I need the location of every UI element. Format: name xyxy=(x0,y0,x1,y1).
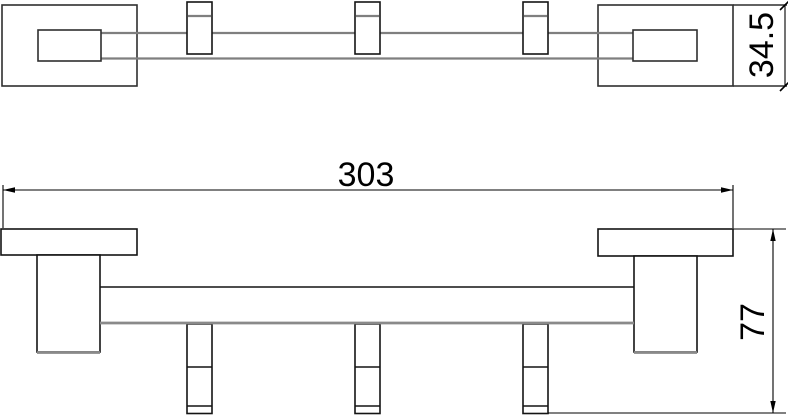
hook-2-top-view xyxy=(355,2,380,54)
hook-1-top-view xyxy=(187,2,212,54)
overall-width-dimension: 303 xyxy=(3,156,733,228)
hook-3-front-view xyxy=(523,324,548,414)
hook-3-top-view xyxy=(523,2,548,54)
end-plate-height-dimension: 34.5 xyxy=(733,0,788,91)
height-dimension-label: 77 xyxy=(734,303,772,341)
hook-3-front-body xyxy=(523,324,548,414)
hook-3-top-body xyxy=(523,2,548,54)
width-arrow-right xyxy=(721,187,733,192)
depth-dimension-label: 34.5 xyxy=(743,12,781,78)
width-dimension-label: 303 xyxy=(338,156,395,194)
left-mount-post xyxy=(37,255,100,352)
hook-2-front-view xyxy=(355,324,380,414)
left-rail-end xyxy=(38,30,101,61)
technical-drawing: 34.5 303 xyxy=(0,0,788,417)
hook-2-top-body xyxy=(355,2,380,54)
hook-1-front-view xyxy=(187,324,212,414)
front-view: 303 xyxy=(1,156,786,414)
top-view: 34.5 xyxy=(2,0,788,91)
drawing-svg: 34.5 303 xyxy=(0,0,788,417)
right-mount-post xyxy=(634,256,697,352)
right-mount-cap xyxy=(598,229,733,256)
hook-2-front-body xyxy=(355,324,380,414)
width-arrow-left xyxy=(3,187,15,192)
hook-1-top-body xyxy=(187,2,212,54)
height-arrow-bottom xyxy=(770,401,775,413)
height-arrow-top xyxy=(770,229,775,241)
left-mount-cap xyxy=(1,229,137,255)
right-rail-end xyxy=(633,30,697,61)
hook-1-front-body xyxy=(187,324,212,414)
